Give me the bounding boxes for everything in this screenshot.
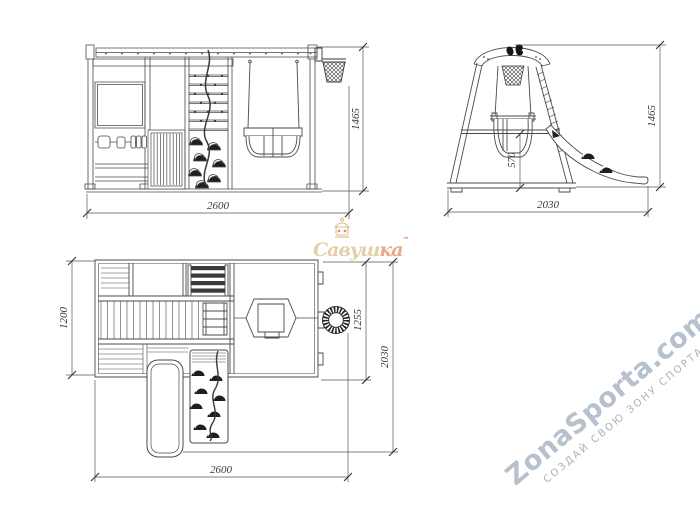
- dim-front-width: 2600: [207, 200, 230, 212]
- site-slogan: СОЗДАЙ СВОЮ ЗОНУ СПОРТА: [509, 318, 700, 513]
- side-basketball-net: [502, 66, 524, 85]
- front-swing: [244, 60, 302, 157]
- dim-side-width: 2030: [537, 199, 560, 211]
- plan-swing-bay: [234, 272, 323, 365]
- plan-dimensions: [66, 257, 398, 482]
- front-climbing-wall: [185, 50, 232, 189]
- front-tower: [95, 57, 150, 189]
- site-name: ZonaSporta.com: [487, 292, 700, 502]
- icon-dot: [344, 230, 347, 233]
- plan-climbing-wall: [190, 350, 229, 443]
- side-slide: [546, 125, 648, 184]
- plan-basketball-hoop: [318, 307, 350, 334]
- side-view-drawing: 570 2030 1465: [432, 30, 682, 228]
- plan-view-drawing: 1200 2600 1255 2030: [55, 240, 410, 490]
- front-view-drawing: 1465 2600: [78, 30, 378, 228]
- front-slide-panel: [148, 130, 185, 189]
- dim-plan-bay-depth: 1255: [352, 309, 364, 332]
- dim-front-height: 1465: [350, 108, 362, 131]
- dim-side-height: 1465: [646, 105, 658, 128]
- arch-bolts: [483, 56, 541, 60]
- dim-side-seat-height: 570: [507, 153, 518, 168]
- front-frame: [85, 45, 322, 192]
- front-basketball-hoop: [315, 48, 346, 82]
- dim-plan-total-depth: 2030: [379, 346, 391, 369]
- climbing-rope: [204, 50, 210, 186]
- icon-dot: [338, 230, 341, 233]
- brand-bear-mark: [505, 44, 523, 56]
- plan-slide: [147, 360, 183, 457]
- site-watermark: ZonaSporta.com СОЗДАЙ СВОЮ ЗОНУ СПОРТА: [487, 292, 700, 513]
- dim-plan-width: 2600: [210, 464, 233, 476]
- dim-plan-deck-depth: 1200: [58, 307, 70, 330]
- plan-monkey-bar-rungs: [191, 266, 225, 293]
